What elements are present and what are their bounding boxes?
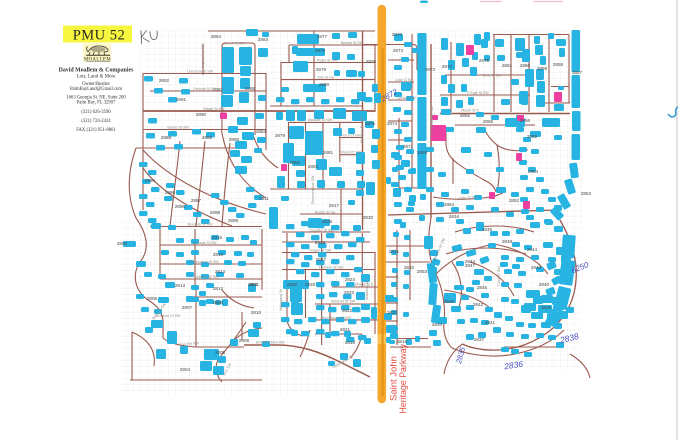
svg-text:2856: 2856 [520,118,531,123]
svg-text:2849: 2849 [482,227,493,232]
svg-text:2805: 2805 [215,350,226,355]
svg-text:2879: 2879 [275,133,286,138]
svg-text:Moonflower St SW: Moonflower St SW [321,316,351,320]
svg-text:Heritage Parkway: Heritage Parkway [398,343,408,413]
svg-text:2854: 2854 [528,169,539,174]
svg-text:2807: 2807 [182,305,193,310]
svg-text:2974: 2974 [442,64,453,69]
svg-text:2879: 2879 [316,67,327,72]
svg-text:2809: 2809 [239,338,250,343]
svg-text:2886: 2886 [245,86,256,91]
svg-text:2852: 2852 [509,198,520,203]
svg-text:Palm Bay, FL 32907: Palm Bay, FL 32907 [77,101,116,106]
svg-text:2865: 2865 [460,113,471,118]
svg-text:2877: 2877 [317,34,328,39]
svg-text:2893: 2893 [117,241,128,246]
svg-text:2888: 2888 [202,135,213,140]
svg-text:2845: 2845 [477,285,488,290]
svg-text:2806: 2806 [147,296,158,301]
svg-text:2876: 2876 [366,59,377,64]
svg-text:2823: 2823 [344,290,355,295]
svg-text:2810: 2810 [251,310,262,315]
svg-text:Lamplighter: Lamplighter [395,270,399,290]
svg-text:2880: 2880 [319,82,330,87]
svg-text:2928: 2928 [305,282,316,287]
svg-text:2822: 2822 [342,308,353,313]
svg-text:Gesso St SW: Gesso St SW [167,126,189,130]
svg-text:Erie St Sw: Erie St Sw [318,76,335,80]
svg-text:2830: 2830 [363,215,374,220]
svg-text:Kansas St SW: Kansas St SW [193,241,217,245]
svg-text:2892: 2892 [159,78,170,83]
svg-text:2816: 2816 [212,235,223,240]
svg-text:2855: 2855 [527,134,538,139]
svg-text:Lots, Land & More: Lots, Land & More [77,75,117,80]
svg-text:2804: 2804 [180,367,191,372]
svg-text:Ruthie St Sw: Ruthie St Sw [315,211,336,215]
svg-text:Bonnie St SW: Bonnie St SW [341,41,364,45]
svg-text:Petunia St SW: Petunia St SW [193,87,217,91]
svg-text:2860: 2860 [520,63,531,68]
svg-text:Circle D SW: Circle D SW [497,266,501,286]
svg-text:2834: 2834 [432,322,443,327]
svg-text:2831: 2831 [389,249,400,254]
svg-text:PalmBayLand@Gmail.com: PalmBayLand@Gmail.com [70,87,122,92]
svg-text:2826: 2826 [315,240,326,245]
svg-text:2883: 2883 [308,164,319,169]
svg-text:2840: 2840 [539,282,550,287]
svg-text:2843: 2843 [531,265,542,270]
svg-text:2885: 2885 [229,137,240,142]
svg-text:2834: 2834 [449,214,460,219]
svg-text:2824: 2824 [345,277,356,282]
svg-text:2975: 2975 [479,58,490,63]
svg-text:2842: 2842 [473,302,484,307]
svg-text:2811: 2811 [249,282,259,287]
svg-text:2858: 2858 [553,62,564,67]
svg-text:Mahogany St: Mahogany St [279,289,283,310]
svg-text:2815: 2815 [213,252,224,257]
svg-text:2844: 2844 [527,247,538,252]
svg-text:Mutuale St SW: Mutuale St SW [308,118,333,122]
svg-text:Pugle St SW: Pugle St SW [317,59,338,63]
svg-text:2920: 2920 [287,282,298,287]
svg-text:2871: 2871 [403,144,414,149]
svg-text:2884: 2884 [256,129,267,134]
svg-text:2874: 2874 [387,121,398,126]
svg-text:Cove D SW: Cove D SW [483,74,502,78]
svg-text:PMU 52: PMU 52 [73,28,126,44]
svg-text:Veronok St SW: Veronok St SW [331,300,356,304]
svg-text:(321) 724-2424: (321) 724-2424 [81,119,111,124]
svg-text:2814: 2814 [215,269,226,274]
svg-text:Hurwood Ave SW: Hurwood Ave SW [430,105,434,134]
svg-text:David Moallem & Companies: David Moallem & Companies [59,68,134,74]
svg-text:Angres Ave SW: Angres Ave SW [201,43,205,69]
svg-text:2844: 2844 [465,259,476,264]
svg-text:2882: 2882 [290,160,301,165]
svg-text:2848: 2848 [502,239,513,244]
svg-text:Juliana St SW: Juliana St SW [196,275,219,279]
svg-text:2895: 2895 [165,190,176,195]
svg-text:Rosenfeld St SW: Rosenfeld St SW [191,260,219,264]
svg-text:FAX (321) 951-8861: FAX (321) 951-8861 [76,128,116,133]
svg-text:2811: 2811 [259,196,269,201]
svg-text:2839: 2839 [541,305,552,310]
svg-text:Atwell St SW: Atwell St SW [224,42,245,46]
svg-text:2818: 2818 [345,340,356,345]
svg-text:2898: 2898 [210,210,221,215]
svg-text:(321) 626-3590: (321) 626-3590 [81,110,111,115]
svg-text:2853: 2853 [417,269,428,274]
svg-text:2866: 2866 [483,119,494,124]
svg-text:2857: 2857 [572,70,583,75]
svg-text:2894: 2894 [145,178,156,183]
svg-text:2875: 2875 [365,121,376,126]
svg-text:2869: 2869 [417,150,428,155]
svg-text:Floyd Ct SW: Floyd Ct SW [341,151,362,155]
svg-text:Lush D Sw: Lush D Sw [395,78,413,82]
svg-text:Leesburg St SW: Leesburg St SW [187,70,214,74]
svg-text:P Kale St SW: P Kale St SW [467,91,489,95]
svg-text:2864: 2864 [444,202,455,207]
svg-text:2878: 2878 [315,48,326,53]
svg-text:2889: 2889 [161,135,172,140]
svg-text:Decatur St SW: Decatur St SW [310,229,334,233]
svg-text:Mezer St S: Mezer St S [461,109,479,113]
svg-text:2817: 2817 [329,203,340,208]
svg-text:Glencove Ave SW: Glencove Ave SW [311,175,315,205]
svg-text:2861: 2861 [502,63,513,68]
svg-text:Waxwing Av: Waxwing Av [365,280,369,300]
svg-text:2808: 2808 [213,300,224,305]
svg-text:2819: 2819 [397,339,408,344]
svg-text:2813: 2813 [175,283,186,288]
svg-text:2881: 2881 [323,150,334,155]
svg-text:2896: 2896 [175,204,186,209]
svg-text:Furry Ct SW: Furry Ct SW [341,134,361,138]
svg-text:2891: 2891 [176,97,187,102]
svg-text:2821: 2821 [340,327,351,332]
svg-text:2899: 2899 [228,218,239,223]
svg-text:2832: 2832 [404,265,415,270]
svg-text:2884: 2884 [211,34,222,39]
svg-text:Edgar St SW: Edgar St SW [204,107,225,111]
svg-text:2837: 2837 [474,337,485,342]
svg-text:2884: 2884 [258,37,269,42]
svg-text:St Andre Blvd SW: St Andre Blvd SW [256,341,285,345]
svg-text:Waxpool Rd SW: Waxpool Rd SW [360,116,364,143]
svg-text:Murdock St SW: Murdock St SW [188,223,214,227]
svg-text:2859: 2859 [537,66,548,71]
svg-text:2841: 2841 [485,320,496,325]
svg-text:2846: 2846 [444,299,455,304]
svg-text:Verbena Ct SW: Verbena Ct SW [156,314,181,318]
svg-text:Turkey St SW: Turkey St SW [309,249,332,253]
svg-text:Funtang St SW: Funtang St SW [319,266,344,270]
svg-text:2890: 2890 [196,112,207,117]
svg-text:2827: 2827 [316,257,327,262]
svg-text:Cyrus D Sw: Cyrus D Sw [397,96,416,100]
svg-text:2973: 2973 [425,67,436,72]
svg-text:2897: 2897 [191,198,202,203]
svg-text:2829: 2829 [322,219,333,224]
svg-text:2820: 2820 [387,310,398,315]
svg-text:2870: 2870 [392,32,403,37]
svg-text:2812: 2812 [213,286,224,291]
svg-text:2873: 2873 [393,48,404,53]
svg-text:2853: 2853 [581,191,592,196]
